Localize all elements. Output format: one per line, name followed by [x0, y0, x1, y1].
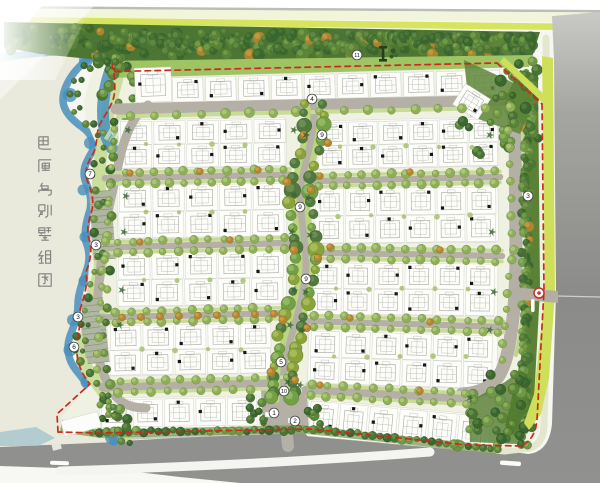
svg-text:9: 9: [298, 204, 302, 211]
svg-text:9: 9: [304, 276, 308, 283]
svg-text:10: 10: [281, 389, 287, 395]
svg-text:11: 11: [354, 53, 360, 59]
svg-text:5: 5: [279, 359, 283, 366]
svg-text:4: 4: [310, 96, 314, 103]
svg-text:9: 9: [320, 132, 324, 139]
svg-text:3: 3: [94, 242, 98, 249]
svg-text:1: 1: [272, 410, 276, 417]
svg-text:7: 7: [88, 171, 92, 178]
svg-text:6: 6: [72, 344, 76, 351]
svg-text:2: 2: [293, 418, 297, 425]
svg-text:3: 3: [526, 193, 530, 200]
svg-text:3: 3: [76, 314, 80, 321]
